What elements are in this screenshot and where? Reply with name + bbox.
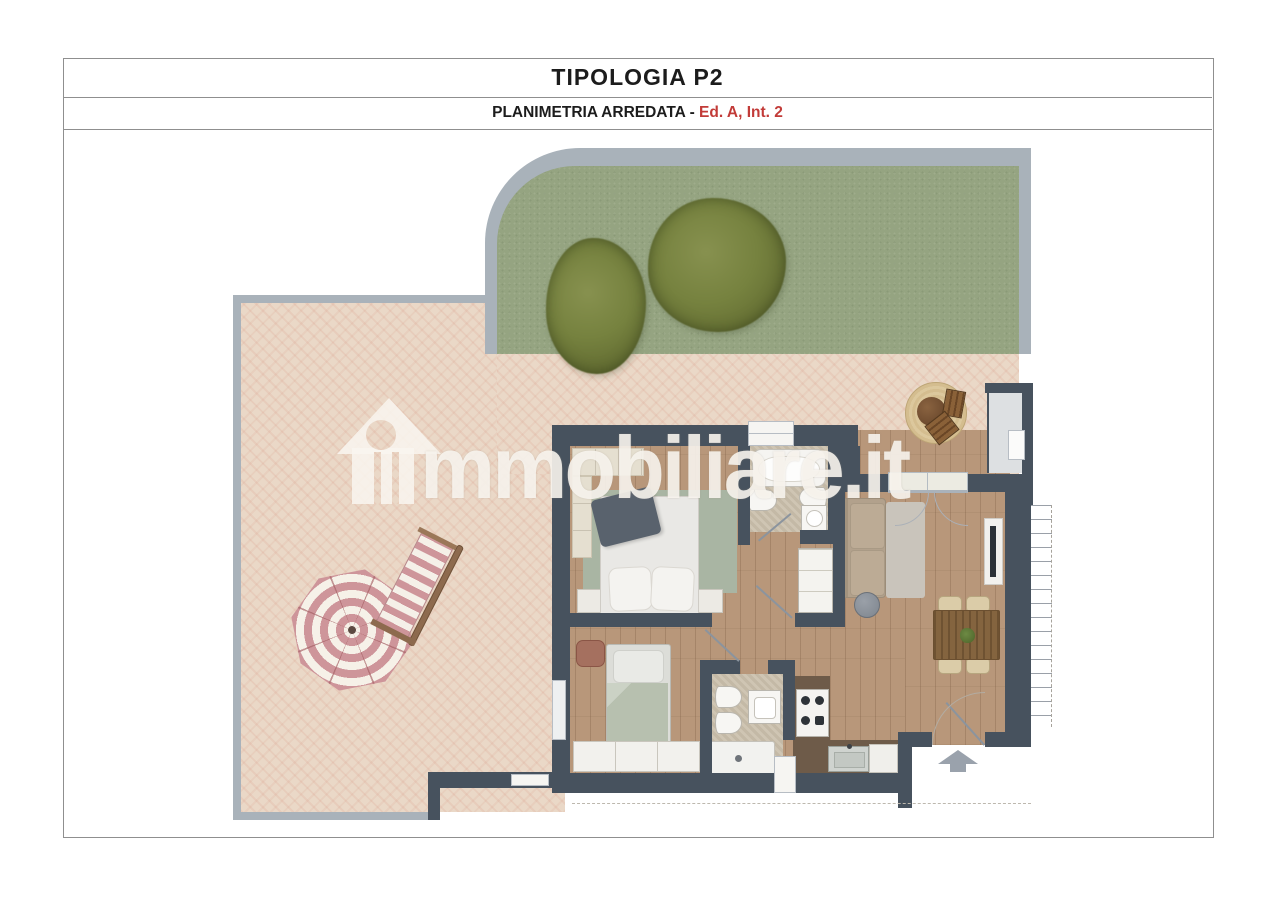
wall-top <box>552 425 858 446</box>
wall-bath1-left <box>738 446 750 545</box>
wall-bath1-right <box>828 446 845 540</box>
title-bar: TIPOLOGIA P2 <box>63 58 1212 97</box>
terrace-wall-left <box>233 295 241 820</box>
entrance-arrow-icon <box>938 750 978 764</box>
kitchen-sink <box>828 746 869 772</box>
wall-bottom-living <box>985 732 1031 747</box>
bidet <box>715 712 742 734</box>
wall-stub <box>898 732 912 808</box>
bathtub-basin <box>758 456 820 482</box>
table-plant <box>960 628 975 643</box>
tree <box>546 238 646 374</box>
pillow <box>613 650 664 683</box>
shower-drain <box>735 755 742 762</box>
dishwasher <box>869 744 898 773</box>
shower-tray <box>704 741 775 775</box>
sofa-cushion <box>850 550 885 596</box>
page-subtitle: PLANIMETRIA ARREDATA - Ed. A, Int. 2 <box>492 104 783 122</box>
wall-bedroom-divider <box>552 613 712 627</box>
toilet <box>715 686 742 708</box>
washbasin <box>748 690 781 724</box>
tv <box>990 526 996 577</box>
burner <box>801 696 810 705</box>
stove <box>796 689 829 737</box>
side-table <box>854 592 880 618</box>
terrace-wall-top <box>233 295 497 303</box>
umbrella-pole <box>347 625 356 634</box>
wall-bath2-top <box>768 660 795 674</box>
subtitle-bar: PLANIMETRIA ARREDATA - Ed. A, Int. 2 <box>63 97 1212 129</box>
terrace-wall-bottom <box>233 812 436 820</box>
floor-plan-page: TIPOLOGIA P2 PLANIMETRIA ARREDATA - Ed. … <box>0 0 1273 900</box>
wall-bath2-left <box>700 660 712 776</box>
page-title: TIPOLOGIA P2 <box>551 64 723 91</box>
subtitle-prefix: PLANIMETRIA ARREDATA - <box>492 104 699 121</box>
faucet <box>847 744 852 749</box>
bedroom-chair <box>576 640 605 667</box>
bed-throw-blanket <box>590 486 662 548</box>
kitchen-door <box>774 756 796 793</box>
bathroom-window <box>748 421 794 446</box>
sink-basin <box>834 752 865 768</box>
wall-bottom <box>552 773 912 793</box>
french-door <box>888 472 968 493</box>
wall-bath1-bottom <box>800 530 845 544</box>
header-divider-2 <box>64 129 1212 130</box>
toilet <box>748 489 777 511</box>
boundary-dashed-line <box>572 803 1031 804</box>
tree <box>648 198 786 332</box>
sofa-cushion <box>850 503 885 549</box>
stairs <box>1031 505 1052 727</box>
wall-closet-bottom <box>795 613 845 627</box>
pillow <box>608 566 653 612</box>
wall-closet-side <box>833 544 845 615</box>
bathtub <box>752 449 826 487</box>
burner <box>815 696 824 705</box>
wall-right <box>1005 492 1031 747</box>
step-wall-window <box>511 774 549 786</box>
wall-bath2-right <box>783 674 795 740</box>
subtitle-unit: Ed. A, Int. 2 <box>699 104 783 121</box>
double-bed <box>600 496 699 617</box>
burner <box>815 716 824 725</box>
dining-table <box>933 610 1000 660</box>
wall-living-top <box>962 474 1031 492</box>
burner <box>801 716 810 725</box>
entry-door <box>1008 430 1025 460</box>
entrance-arrow-stem <box>950 764 966 772</box>
washbasin-bowl <box>806 510 823 527</box>
pillow <box>650 566 695 612</box>
bedroom-window <box>552 680 566 740</box>
washbasin <box>801 505 827 531</box>
wall-bath2-top <box>700 660 740 674</box>
hall-closet <box>798 548 833 613</box>
wardrobe <box>572 448 644 476</box>
wardrobe <box>573 741 700 772</box>
nightstand <box>695 589 723 613</box>
washbasin-bowl <box>754 697 776 719</box>
wardrobe <box>572 476 592 558</box>
